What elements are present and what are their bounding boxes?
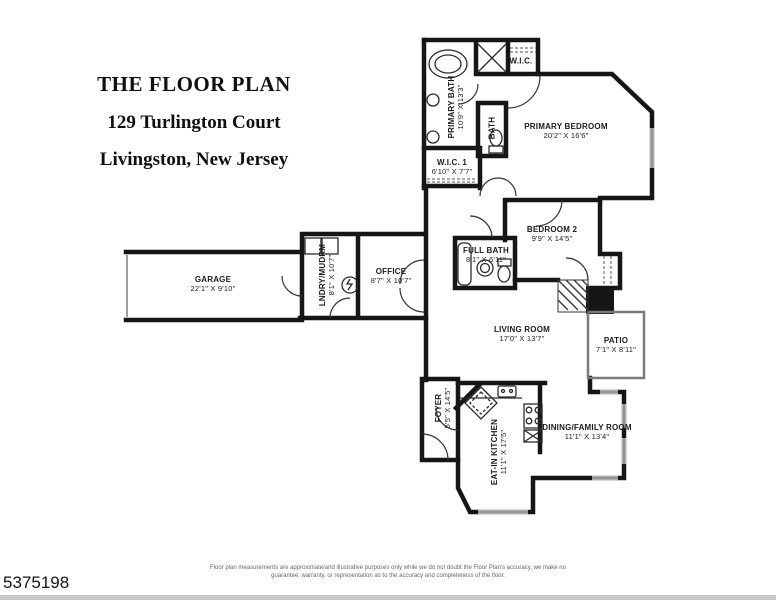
door-arc	[400, 288, 424, 312]
room-label-bedroom2: BEDROOM 2 9'9" X 14'5"	[527, 225, 577, 243]
room-dims: 17'0" X 13'7"	[494, 334, 550, 343]
room-label-bath: BATH	[488, 117, 497, 139]
door-arc	[566, 258, 588, 280]
shower-icon	[478, 44, 506, 72]
sink-icon	[427, 94, 439, 106]
room-name: W.I.C.	[510, 57, 533, 66]
door-arc	[282, 276, 302, 296]
room-label-office: OFFICE 8'7" X 10'7"	[371, 267, 412, 285]
room-label-wic: W.I.C.	[510, 57, 533, 66]
room-name: DINING/FAMILY ROOM	[542, 423, 631, 432]
room-name: LNDRY/MUDRM	[318, 244, 327, 306]
room-name: PRIMARY BATH	[447, 76, 456, 139]
room-label-primary-bedroom: PRIMARY BEDROOM 20'2" X 16'6"	[524, 122, 607, 140]
kitchen-sink-icon	[498, 386, 516, 397]
room-dims: 22'1" X 9'10"	[191, 284, 236, 293]
toilet-tank-icon	[489, 146, 503, 153]
room-name: OFFICE	[371, 267, 412, 276]
room-dims: 10'9" X 13'3"	[456, 76, 465, 139]
tub-inner-icon	[435, 55, 461, 73]
room-name: BATH	[488, 117, 497, 139]
toilet-icon	[498, 266, 510, 282]
sink-inner-icon	[481, 264, 490, 273]
room-dims: 6'10" X 7'7"	[432, 167, 473, 176]
room-label-laundry-mudroom: LNDRY/MUDRM 8'1" X 10'7"	[318, 244, 336, 306]
room-label-eat-in-kitchen: EAT-IN KITCHEN 11'1" X 17'5"	[490, 419, 508, 485]
room-dims: 9'9" X 14'5"	[527, 234, 577, 243]
room-label-primary-bath: PRIMARY BATH 10'9" X 13'3"	[447, 76, 465, 139]
door-arc	[508, 76, 540, 108]
room-label-living-room: LIVING ROOM 17'0" X 13'7"	[494, 325, 550, 343]
faucet-dot	[502, 390, 505, 393]
sink-icon	[427, 131, 439, 143]
chimney-block	[586, 286, 614, 314]
floorplan-page: THE FLOOR PLAN 129 Turlington Court Livi…	[0, 0, 776, 600]
room-dims: 11'1" X 17'5"	[499, 419, 508, 485]
disclaimer-line1: Floor plan measurements are approximate/…	[168, 565, 608, 573]
room-dims: 8'1" X 6'11"	[463, 255, 509, 264]
room-label-wic1: W.I.C. 1 6'10" X 7'7"	[432, 158, 473, 176]
room-label-patio: PATIO 7'1" X 8'11"	[596, 336, 636, 354]
room-dims: 8'7" X 10'7"	[371, 276, 412, 285]
disclaimer: Floor plan measurements are approximate/…	[168, 565, 608, 580]
listing-id: 5375198	[3, 573, 69, 593]
room-dims: 20'2" X 16'6"	[524, 131, 607, 140]
room-name: BEDROOM 2	[527, 225, 577, 234]
burner-icon	[526, 407, 532, 413]
door-arc	[422, 434, 448, 460]
room-name: GARAGE	[191, 275, 236, 284]
door-arc	[536, 200, 562, 226]
room-dims: 8'1" X 10'7"	[327, 244, 336, 306]
door-arc	[498, 178, 516, 196]
bottom-bar	[0, 595, 776, 600]
room-label-full-bath: FULL BATH 8'1" X 6'11"	[463, 246, 509, 264]
room-label-dining-family-room: DINING/FAMILY ROOM 11'1" X 13'4"	[542, 423, 631, 441]
door-arc	[470, 216, 492, 238]
burner-icon	[526, 418, 532, 424]
electrical-bolt-icon	[347, 279, 352, 290]
room-name: FOYER	[434, 388, 443, 429]
room-name: FULL BATH	[463, 246, 509, 255]
room-name: PRIMARY BEDROOM	[524, 122, 607, 131]
room-name: W.I.C. 1	[432, 158, 473, 167]
room-label-foyer: FOYER 5'5" X 14'5"	[434, 388, 452, 429]
floorplan-drawing	[0, 0, 776, 600]
room-name: PATIO	[596, 336, 636, 345]
room-dims: 7'1" X 8'11"	[596, 345, 636, 354]
door-arc	[480, 178, 498, 196]
stairs-hatch	[558, 280, 588, 312]
room-name: LIVING ROOM	[494, 325, 550, 334]
room-dims: 11'1" X 13'4"	[542, 432, 631, 441]
disclaimer-line2: guarantee, warranty, or representation a…	[168, 573, 608, 581]
room-dims: 5'5" X 14'5"	[443, 388, 452, 429]
room-name: EAT-IN KITCHEN	[490, 419, 499, 485]
room-label-garage: GARAGE 22'1" X 9'10"	[191, 275, 236, 293]
faucet-dot	[510, 390, 513, 393]
